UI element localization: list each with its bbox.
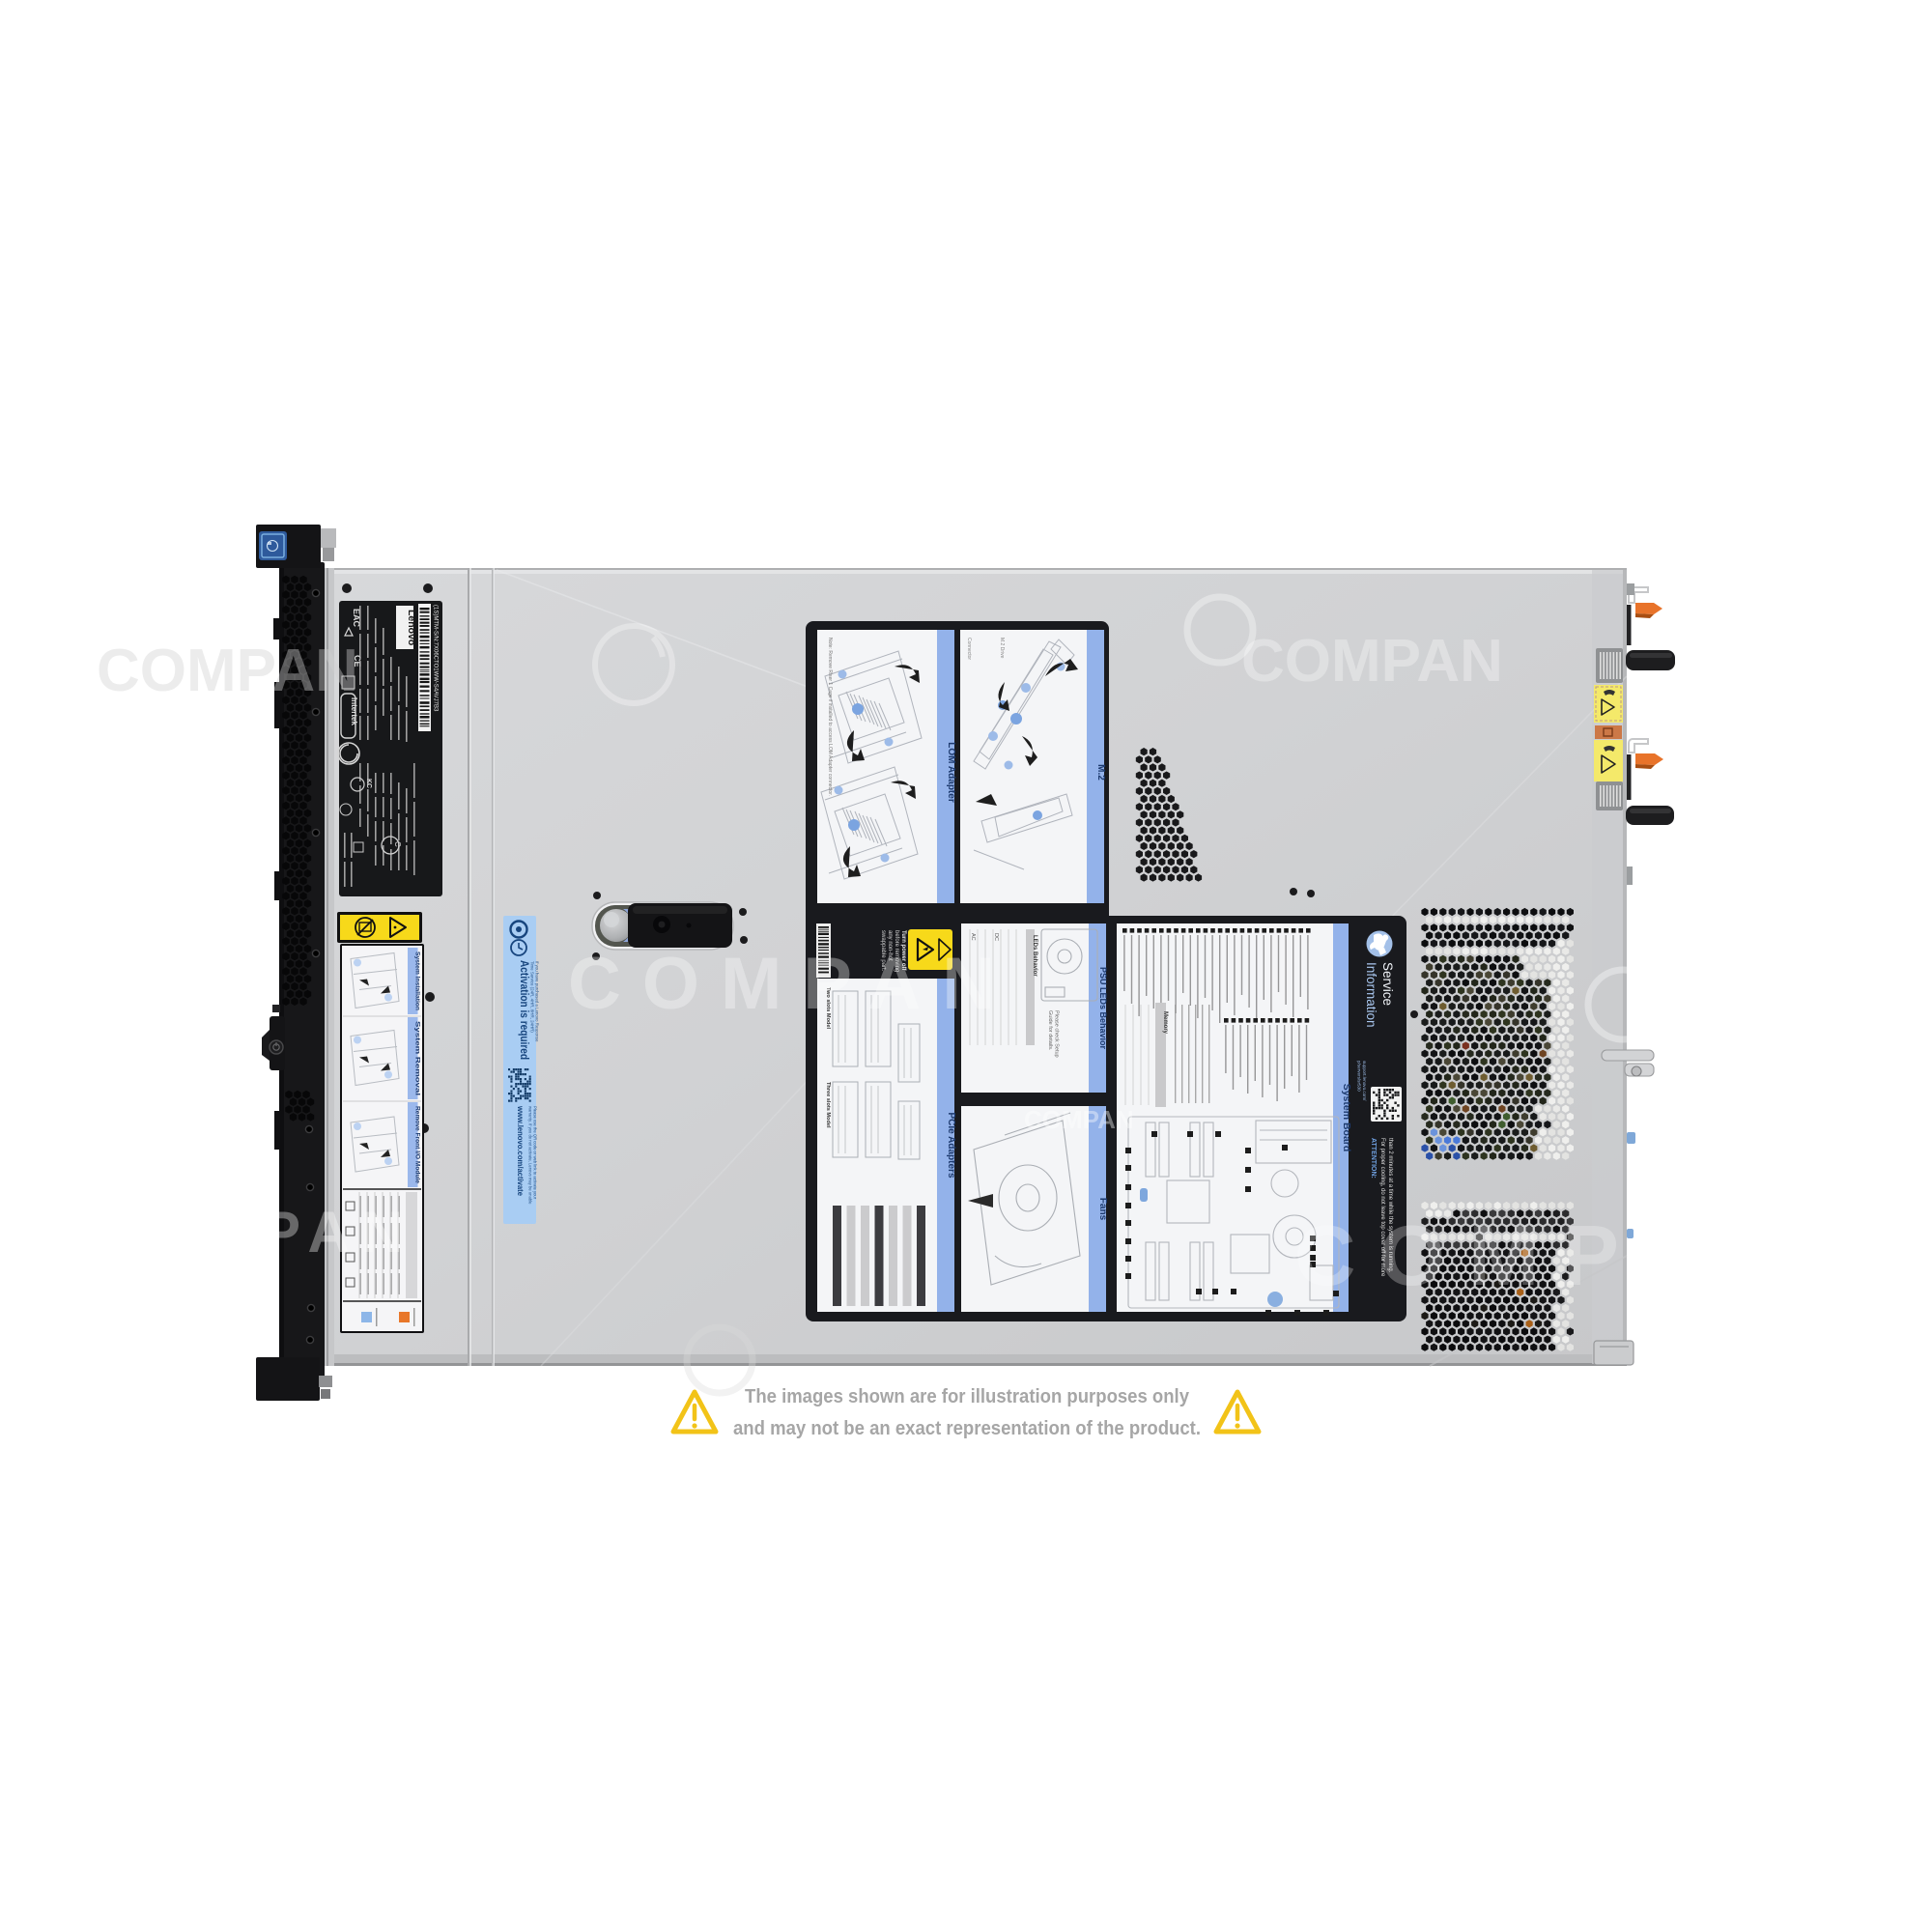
svg-text:Time Service (24R, 4HR, 8HR, 2: Time Service (24R, 4HR, 8HR, 24HR) — [530, 961, 535, 1033]
svg-text:Lenovo: Lenovo — [406, 610, 417, 645]
svg-text:COMPAN: COMPAN — [92, 1200, 414, 1264]
svg-text:COMPAN: COMPAN — [1024, 1105, 1134, 1134]
svg-text:Memory: Memory — [1162, 1011, 1168, 1035]
svg-text:www.lenovo.com/activate: www.lenovo.com/activate — [516, 1105, 526, 1196]
svg-text:M.2 Drive: M.2 Drive — [999, 638, 1005, 659]
svg-text:Three slots Model: Three slots Model — [825, 1082, 831, 1128]
svg-text:COMPAN: COMPAN — [97, 638, 358, 704]
svg-text:COMPAN: COMPAN — [1294, 1207, 1805, 1303]
svg-text:System Removal: System Removal — [414, 1021, 421, 1095]
svg-text:M.2: M.2 — [1095, 764, 1106, 781]
svg-text:(1S)MTM-S/N:7X06CTO1WW-S4AVJ7B: (1S)MTM-S/N:7X06CTO1WW-S4AVJ7B3 — [433, 605, 439, 712]
svg-text:Fans: Fans — [1097, 1198, 1108, 1221]
svg-text:p/servers/sr530: p/servers/sr530 — [1357, 1061, 1362, 1092]
svg-text:LOM Adapter: LOM Adapter — [946, 742, 956, 803]
svg-text:The images shown are for illus: The images shown are for illustration pu… — [745, 1385, 1190, 1407]
svg-text:Remove Front I/O Module: Remove Front I/O Module — [414, 1106, 421, 1183]
svg-text:System Board: System Board — [1341, 1084, 1352, 1152]
svg-text:C: C — [393, 841, 402, 847]
svg-text:Service: Service — [1380, 962, 1395, 1006]
svg-text:DC: DC — [993, 933, 999, 941]
svg-text:System Installation: System Installation — [414, 952, 421, 1010]
svg-text:KC: KC — [365, 779, 372, 788]
svg-text:Please check Setup: Please check Setup — [1054, 1010, 1060, 1058]
svg-text:Information: Information — [1364, 962, 1378, 1028]
svg-text:PCIe Adapters: PCIe Adapters — [946, 1113, 956, 1179]
svg-text:support.lenovo.com/: support.lenovo.com/ — [1362, 1061, 1367, 1101]
svg-text:Activation is required: Activation is required — [518, 960, 531, 1060]
svg-text:AC: AC — [970, 933, 976, 941]
svg-text:LEDs Behavior: LEDs Behavior — [1032, 935, 1037, 977]
svg-text:and may not be an exact repres: and may not be an exact representation o… — [733, 1417, 1201, 1439]
svg-text:Guide for details.: Guide for details. — [1047, 1010, 1053, 1051]
svg-text:Connector: Connector — [966, 638, 972, 660]
svg-text:COMPAN: COMPAN — [568, 943, 1016, 1025]
svg-text:ATTENTION:: ATTENTION: — [1370, 1138, 1377, 1179]
svg-text:COMPAN: COMPAN — [1241, 628, 1503, 695]
svg-text:PSU LEDs Behavior: PSU LEDs Behavior — [1098, 967, 1108, 1050]
svg-text:warranty. If you do not activa: warranty. If you do not activate, Lenovo… — [528, 1106, 533, 1205]
svg-text:Note: Remove Riser 1 Cage if i: Note: Remove Riser 1 Cage if installed t… — [827, 638, 833, 796]
